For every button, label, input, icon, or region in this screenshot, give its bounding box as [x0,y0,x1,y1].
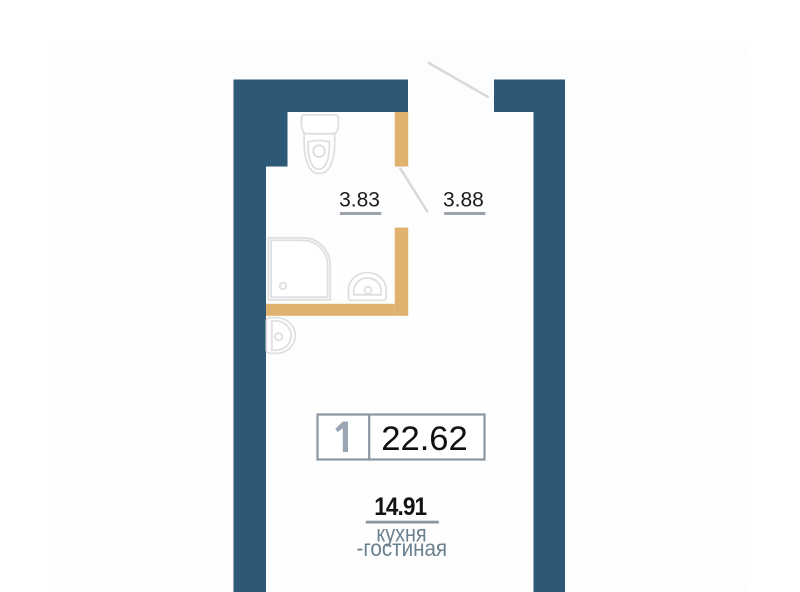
svg-text:-гостиная: -гостиная [357,535,448,561]
svg-text:3.88: 3.88 [443,189,484,212]
svg-text:14.91: 14.91 [374,493,427,521]
svg-text:3.83: 3.83 [339,189,380,212]
svg-text:22.62: 22.62 [381,420,468,458]
